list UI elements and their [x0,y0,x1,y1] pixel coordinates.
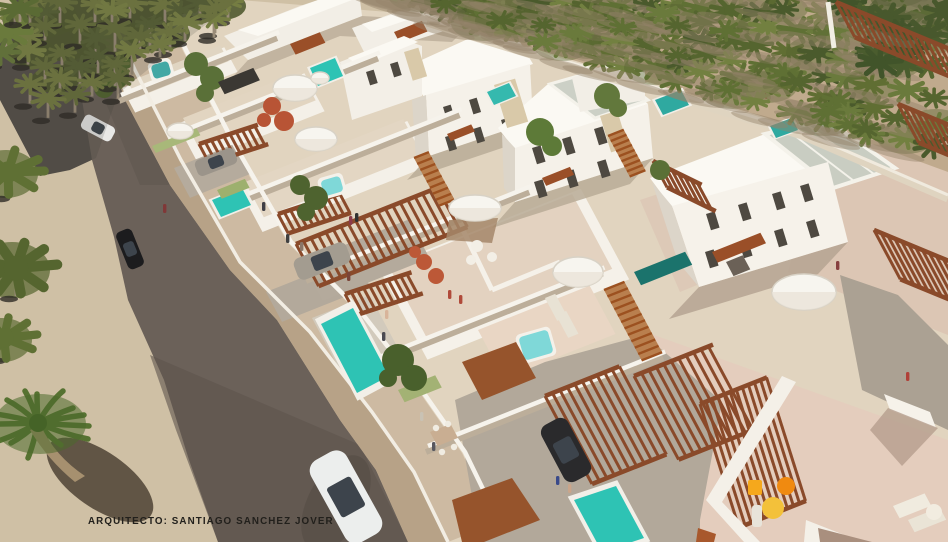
svg-text:ARQUITECTO: SANTIAGO SANCHEZ J: ARQUITECTO: SANTIAGO SANCHEZ JOVER [88,516,334,527]
